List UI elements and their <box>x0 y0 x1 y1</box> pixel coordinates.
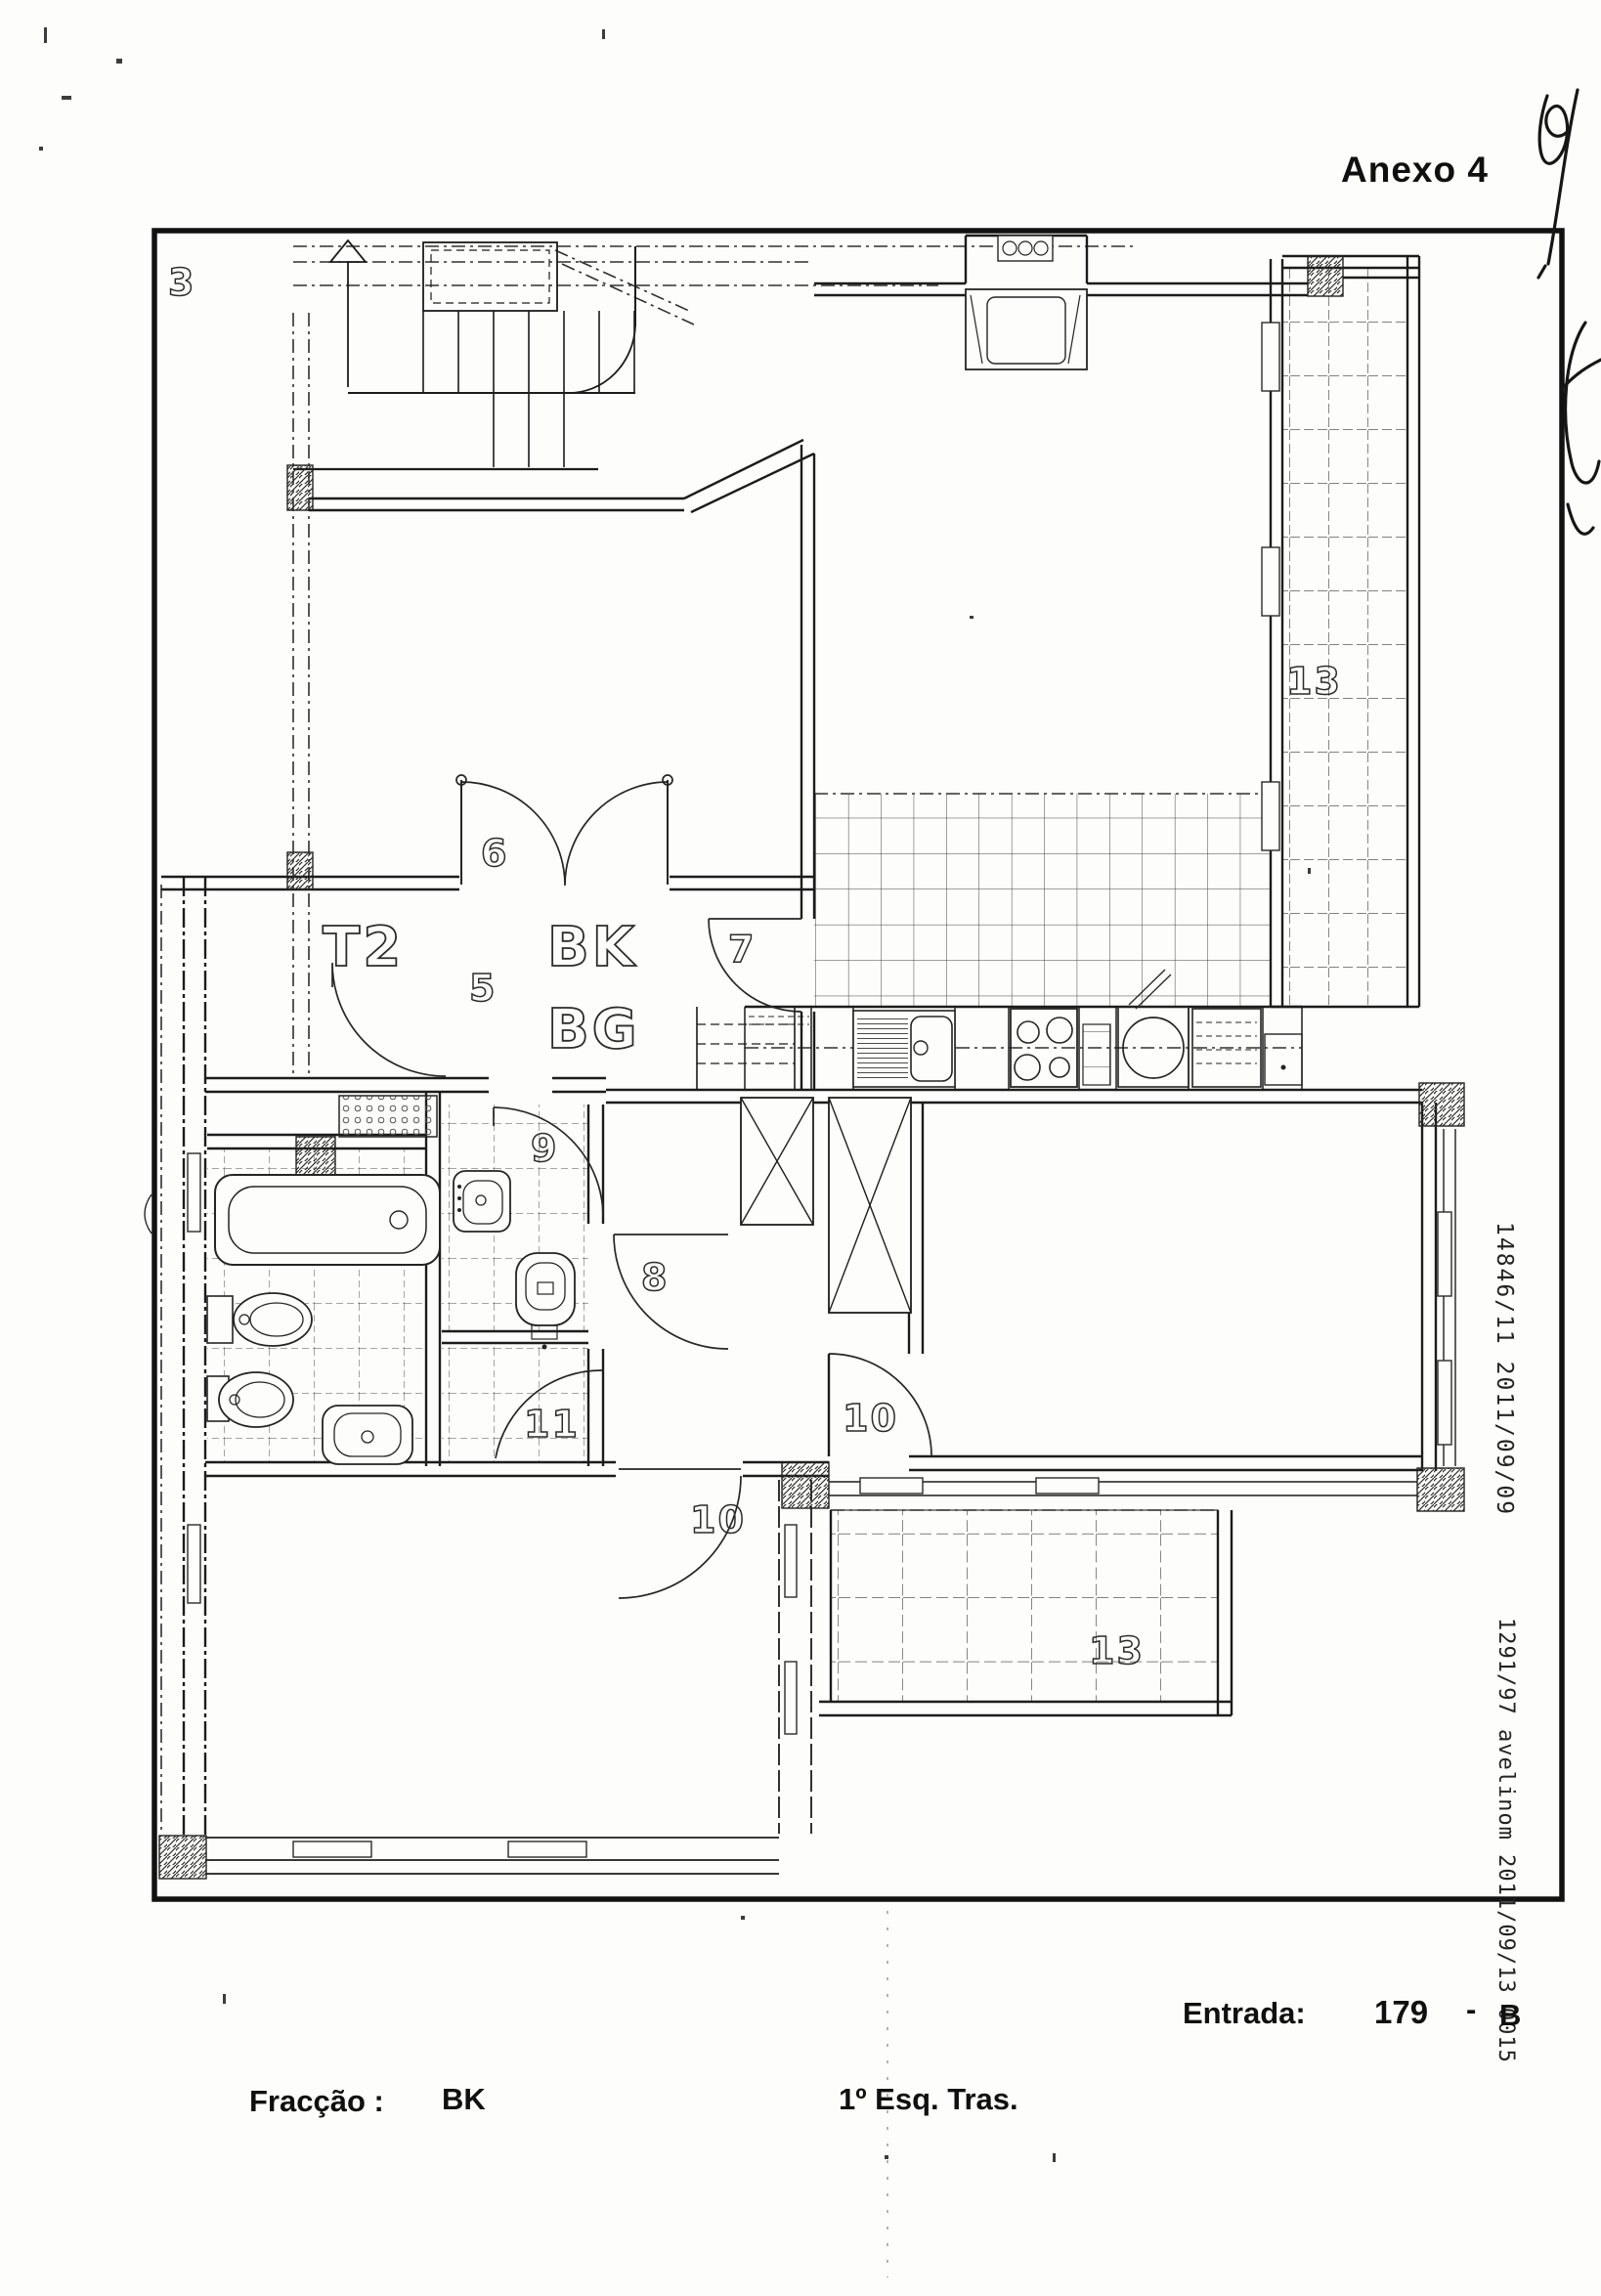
label-t2: T2 <box>323 916 404 979</box>
right-balcony-grid <box>1282 268 1407 1007</box>
scanned-floorplan-page: 3 6 T2 5 BK BG 7 9 8 10 10 11 13 13 Anex… <box>0 0 1601 2296</box>
annex-title: Anexo 4 <box>1341 150 1489 190</box>
fraccao-value: BK <box>442 2082 486 2116</box>
vent-box <box>998 236 1053 261</box>
bottom-balcony-grid <box>831 1510 1218 1702</box>
left-window-arc <box>145 1194 151 1234</box>
sheet-number-label: 3 <box>168 261 195 304</box>
footer-fields: Entrada: 179 - B Fracção : BK 1º Esq. Tr… <box>249 1992 1521 2118</box>
radiator <box>339 1096 437 1137</box>
label-bg: BG <box>547 998 640 1061</box>
toilet <box>207 1293 312 1346</box>
label-room-5: 5 <box>469 967 497 1010</box>
label-corridor-8: 8 <box>641 1256 669 1299</box>
entrada-separator: - <box>1466 1992 1476 2026</box>
label-balcony-13-right: 13 <box>1286 660 1342 703</box>
sink-drainboard <box>857 1017 908 1081</box>
bathtub <box>215 1175 440 1265</box>
label-door-7: 7 <box>728 928 756 971</box>
location-value: 1º Esq. Tras. <box>839 2082 1018 2116</box>
bidet <box>207 1372 293 1427</box>
counter-tile-strip <box>1083 1024 1110 1085</box>
label-bath-9: 9 <box>531 1127 558 1170</box>
label-balcony-13-bottom: 13 <box>1089 1629 1145 1672</box>
registry-stamp-line1: 14846/11 2011/09/09 <box>1492 1222 1517 1516</box>
registry-stamp-line2: 1291/97 avelinom 2011/09/13 0015 <box>1493 1618 1518 2063</box>
washbasin <box>323 1406 412 1464</box>
floorplan-canvas: 3 6 T2 5 BK BG 7 9 8 10 10 11 13 13 Anex… <box>0 0 1601 2296</box>
kitchen-tile-floor <box>814 794 1271 1007</box>
entrada-letter: B <box>1499 1998 1521 2032</box>
label-door-6: 6 <box>481 832 508 875</box>
label-door-10-living: 10 <box>690 1498 746 1541</box>
entrada-number: 179 <box>1374 1994 1428 2030</box>
fraccao-label: Fracção : <box>249 2084 384 2118</box>
label-door-10-bedroom: 10 <box>843 1397 898 1440</box>
label-hall-11: 11 <box>524 1403 580 1446</box>
washbasin-small <box>454 1171 510 1232</box>
entrada-label: Entrada: <box>1183 1996 1306 2030</box>
label-bk: BK <box>547 916 637 979</box>
